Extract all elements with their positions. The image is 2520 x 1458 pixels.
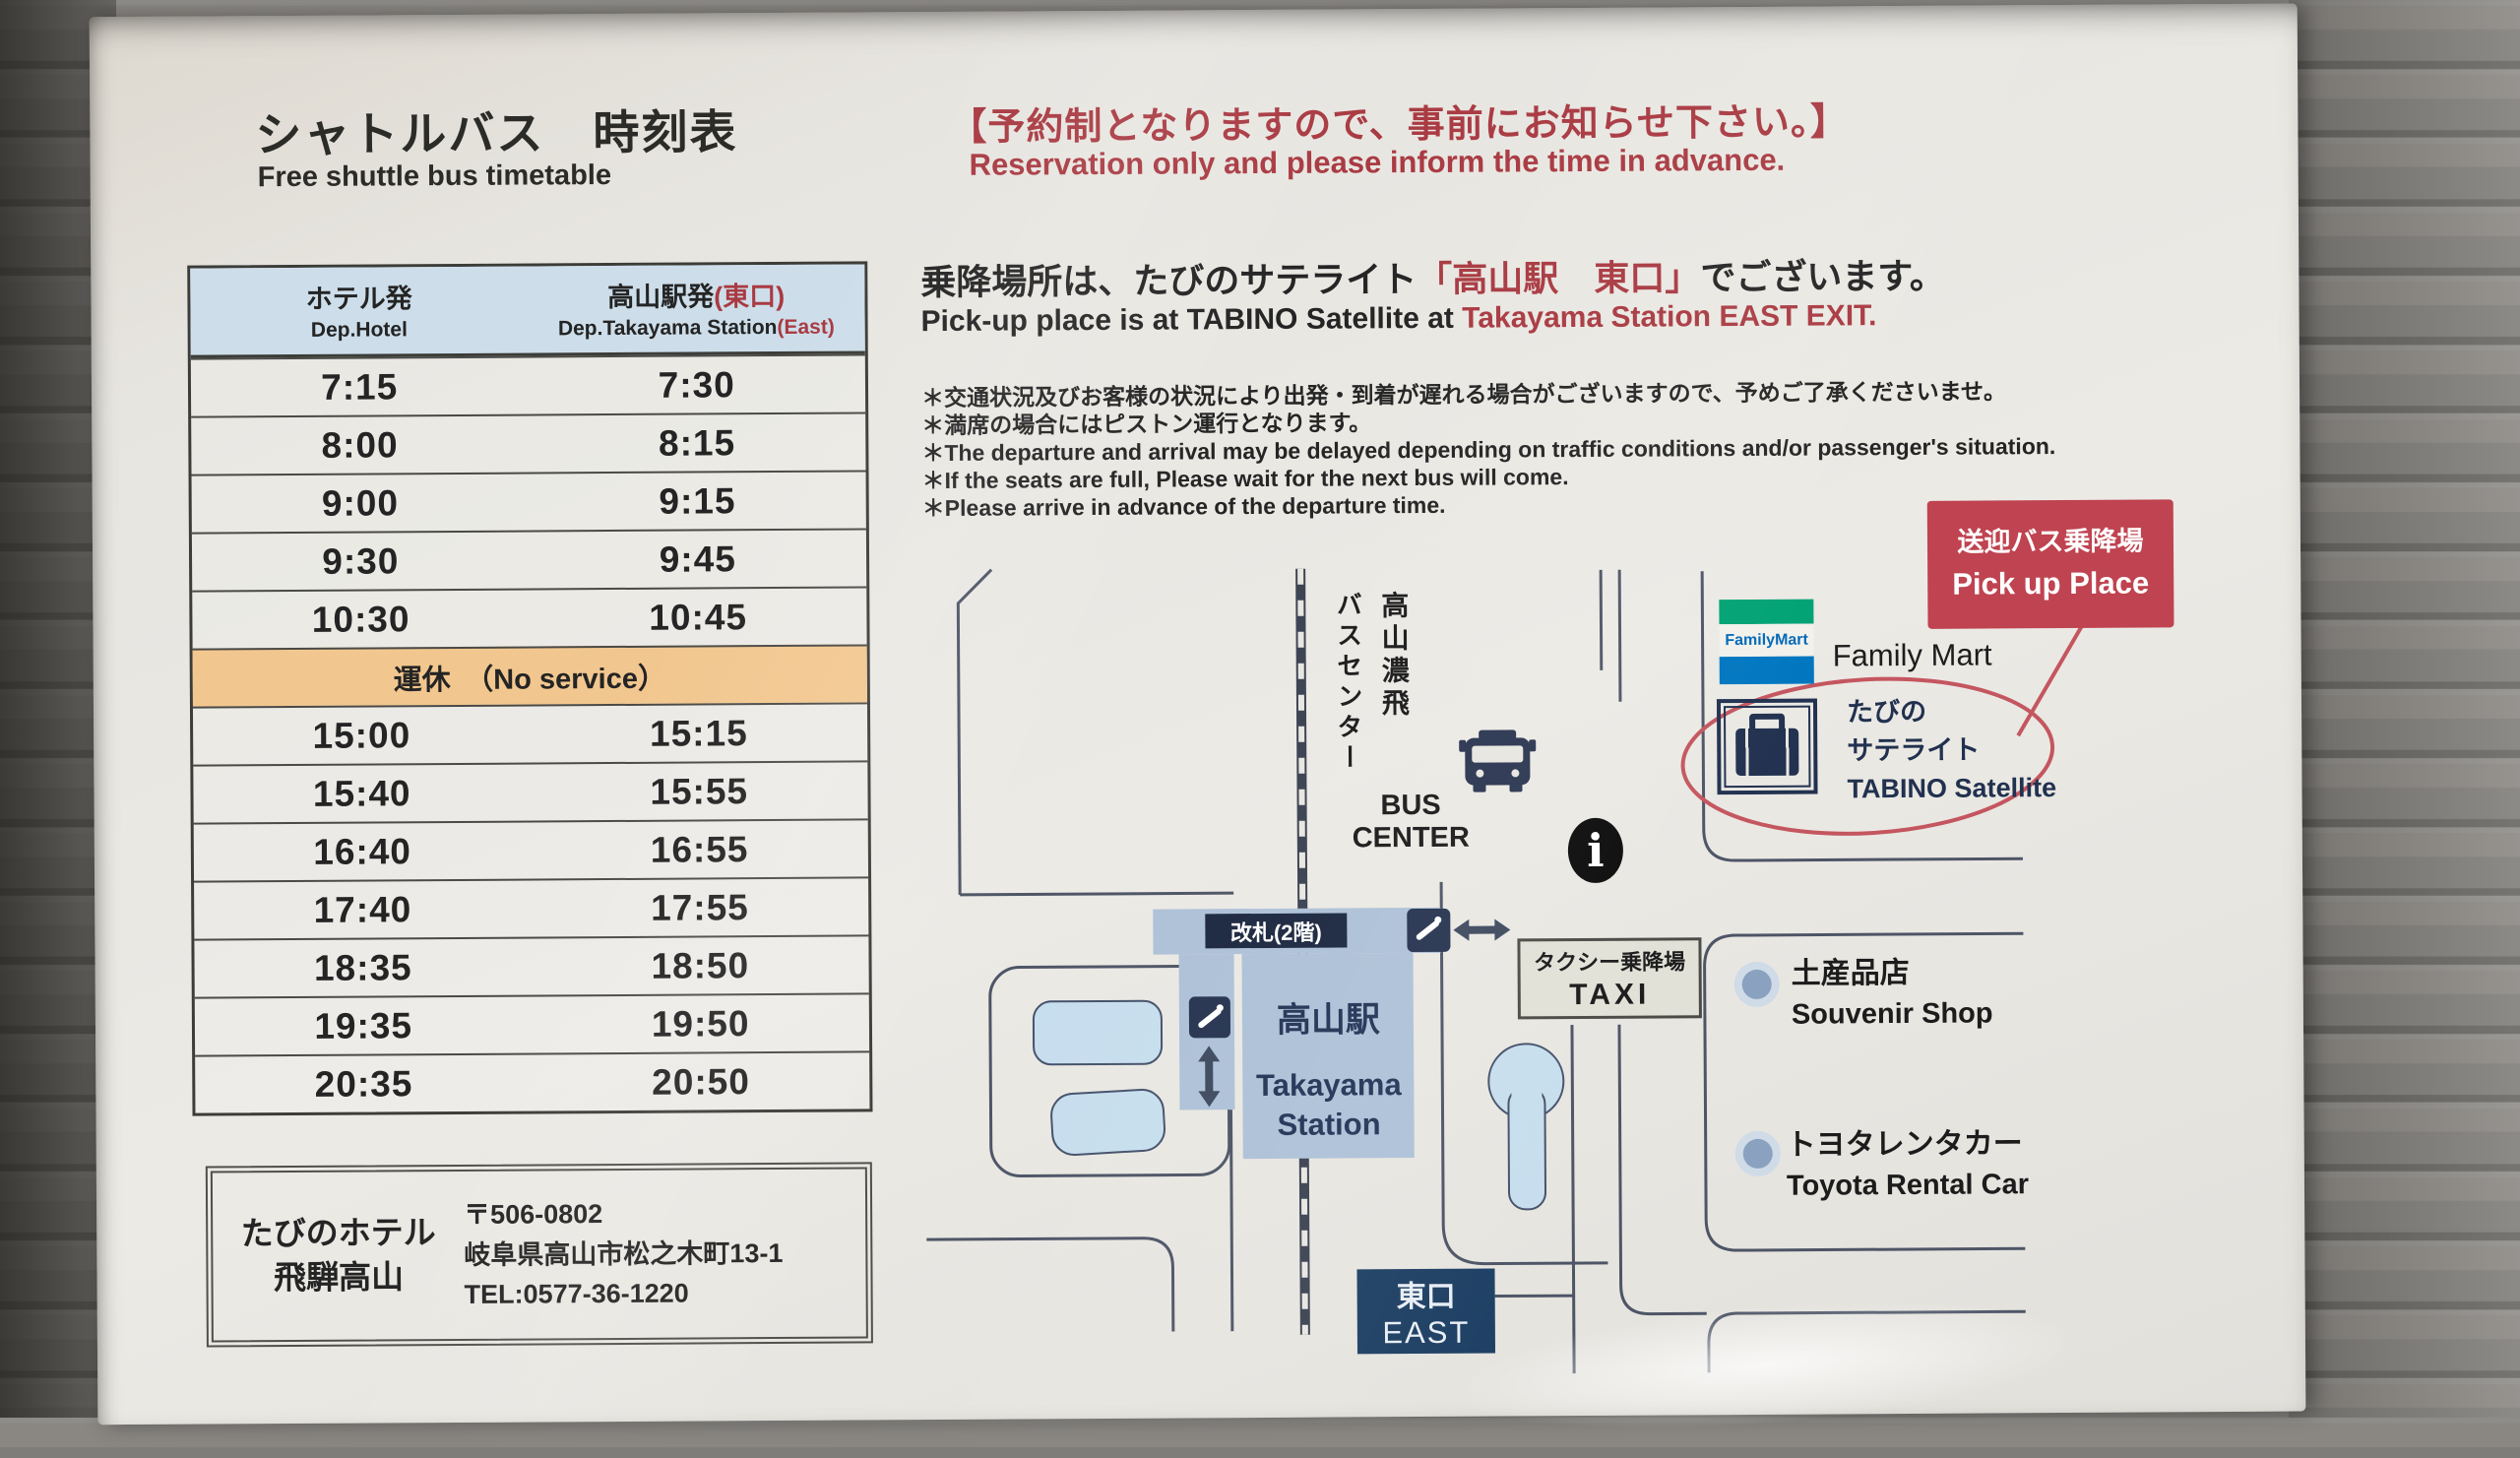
arr-time: 20:50 [533,1060,870,1104]
dep-time: 17:40 [194,888,532,931]
poster-sheet: シャトルバス 時刻表 Free shuttle bus timetable ホテ… [0,0,2520,1426]
header-station-jp: 高山駅発(東口) [528,274,865,314]
table-row: 20:3520:50 [195,1050,869,1112]
table-row: 8:008:15 [191,412,865,474]
escalator-icon [1189,996,1230,1038]
table-row: 15:4015:55 [193,760,867,822]
no-service-label: 運休 （No service） [394,655,666,698]
familymart-logo-icon: FamilyMart [1719,600,1814,685]
arr-time: 8:15 [529,421,866,465]
station-label-jp: 高山駅 [1237,991,1419,1043]
arr-time: 15:15 [531,712,868,755]
luggage-body [1735,729,1798,776]
information-letter: i [1587,824,1605,877]
table-row: 15:0015:15 [193,702,867,764]
bus-icon [1459,729,1536,792]
dep-time: 19:35 [195,1004,533,1047]
dep-time: 10:30 [192,598,530,641]
table-row: 19:3519:50 [195,992,869,1054]
table-row: 9:009:15 [192,470,866,532]
table-row: 16:4016:55 [194,818,868,880]
familymart-blue-bar [1720,657,1814,685]
pickup-box-en: Pick up Place [1952,560,2149,607]
hotel-name-line2: 飛騨高山 [213,1255,464,1300]
arr-time: 19:50 [532,1002,869,1046]
toyota-label-jp: トヨタレンタカー [1787,1123,2029,1167]
arr-time: 18:50 [532,944,869,987]
pickup-jp-black2: でございます。 [1700,256,1945,298]
ticket-gate-label: 改札(2階) [1205,913,1347,948]
pickup-jp-black1: 乗降場所は、たびのサテライト [920,259,1417,302]
poster-title-jp: シャトルバス 時刻表 [255,94,737,164]
no-service-row: 運休 （No service） [193,644,867,706]
table-row: 17:4017:55 [194,876,868,938]
timetable-header-hotel: ホテル発 Dep.Hotel [190,267,528,355]
souvenir-shop-label: 土産品店 Souvenir Shop [1792,952,1993,1035]
dep-time: 9:30 [192,539,530,583]
hotel-address-block: 〒506-0802 岐阜県高山市松之木町13-1 TEL:0577-36-122… [464,1193,784,1314]
tabino-satellite-label: たびの サテライト TABINO Satellite [1847,692,2056,809]
header-hotel-en: Dep.Hotel [191,318,529,344]
familymart-green-bar [1719,600,1813,625]
arr-time: 15:55 [531,770,868,813]
tabino-label-en: TABINO Satellite [1847,769,2056,808]
luggage-icon [1717,699,1818,795]
arr-time: 9:45 [529,538,866,581]
hotel-name: たびのホテル 飛騨高山 [213,1211,465,1300]
station-label-en2: Station [1237,1105,1419,1145]
dep-time: 9:00 [192,481,530,525]
souvenir-label-en: Souvenir Shop [1792,993,1993,1035]
header-station-jp-red: (東口) [714,282,785,311]
shuttle-timetable: ホテル発 Dep.Hotel 高山駅発(東口) Dep.Takayama Sta… [187,261,872,1115]
dep-time: 15:40 [193,772,531,815]
tabino-label-jp2: サテライト [1847,730,2056,770]
information-icon: i [1568,818,1623,883]
pond-shapes [1034,1001,1166,1157]
pickup-jp-red: 「高山駅 東口」 [1417,257,1700,299]
dep-time: 16:40 [194,830,532,873]
timetable-header-station: 高山駅発(東口) Dep.Takayama Station(East) [528,264,865,352]
taxi-stand-label: タクシー乗降場 TAXI [1517,937,1701,1019]
dep-time: 7:15 [191,365,529,409]
familymart-label: Family Mart [1833,637,1992,673]
poster-title-en: Free shuttle bus timetable [258,159,612,194]
table-row: 18:3518:50 [194,934,868,996]
pickup-box-jp: 送迎バス乗降場 [1957,521,2143,562]
header-station-en-black: Dep.Takayama Station [558,316,778,340]
pickup-place-line-en: Pick-up place is at TABINO Satellite at … [920,299,1876,339]
pickup-en-black: Pick-up place is at TABINO Satellite at [920,302,1462,338]
bus-center-vertical-label-right: 高山濃飛 [1373,591,1414,721]
hotel-info-box: たびのホテル 飛騨高山 〒506-0802 岐阜県高山市松之木町13-1 TEL… [206,1162,873,1347]
east-exit-jp: 東口 [1396,1272,1455,1315]
taxi-label-en: TAXI [1569,979,1650,1013]
arr-time: 10:45 [530,596,867,639]
bus-center-vertical-label-left: バスセンター [1330,591,1367,774]
pickup-place-line-jp: 乗降場所は、たびのサテライト「高山駅 東口」でございます。 [920,248,1945,305]
toyota-label-en: Toyota Rental Car [1787,1165,2029,1206]
header-station-en: Dep.Takayama Station(East) [528,315,865,341]
dep-time: 18:35 [194,946,532,989]
luggage-icon-frame [1724,706,1811,789]
table-row: 9:309:45 [192,528,866,590]
taxi-label-jp: タクシー乗降場 [1534,944,1685,977]
dep-time: 20:35 [195,1062,533,1106]
dep-time: 8:00 [191,423,529,467]
toyota-rental-label: トヨタレンタカー Toyota Rental Car [1787,1123,2030,1206]
arr-time: 9:15 [529,479,866,523]
souvenir-shop-marker-icon [1742,970,1772,999]
header-station-en-red: (East) [777,316,834,339]
hotel-street-address: 岐阜県高山市松之木町13-1 [464,1234,783,1275]
dep-time: 15:00 [193,714,531,757]
takayama-station-label: 高山駅 Takayama Station [1237,991,1420,1146]
station-label-en1: Takayama [1237,1065,1419,1106]
bus-center-label: BUS CENTER [1310,789,1512,856]
toyota-rental-marker-icon [1743,1139,1773,1169]
pickup-en-red: Takayama Station EAST EXIT. [1462,299,1876,335]
header-hotel-jp: ホテル発 [190,277,528,317]
hotel-postal-code: 〒506-0802 [464,1193,783,1235]
hotel-phone: TEL:0577-36-1220 [464,1273,783,1314]
taxi-loop [1488,1044,1564,1209]
hotel-name-line1: たびのホテル [213,1211,464,1256]
arr-time: 17:55 [532,886,869,929]
familymart-wordmark: FamilyMart [1719,624,1813,658]
reservation-notice-jp: 【予約制となりますので、事前にお知らせ下さい。】 [949,91,1849,151]
escalator-icon [1407,909,1450,952]
souvenir-label-jp: 土産品店 [1792,952,1993,994]
timetable-header-row: ホテル発 Dep.Hotel 高山駅発(東口) Dep.Takayama Sta… [190,264,865,357]
arr-time: 16:55 [531,828,868,871]
reservation-notice-en: Reservation only and please inform the t… [970,143,1786,183]
pickup-place-box: 送迎バス乗降場 Pick up Place [1927,499,2174,629]
table-row: 10:3010:45 [192,586,866,648]
table-row: 7:157:30 [191,353,865,415]
tabino-label-jp1: たびの [1847,692,2056,731]
header-station-jp-black: 高山駅発 [607,282,714,312]
arr-time: 7:30 [528,363,865,407]
